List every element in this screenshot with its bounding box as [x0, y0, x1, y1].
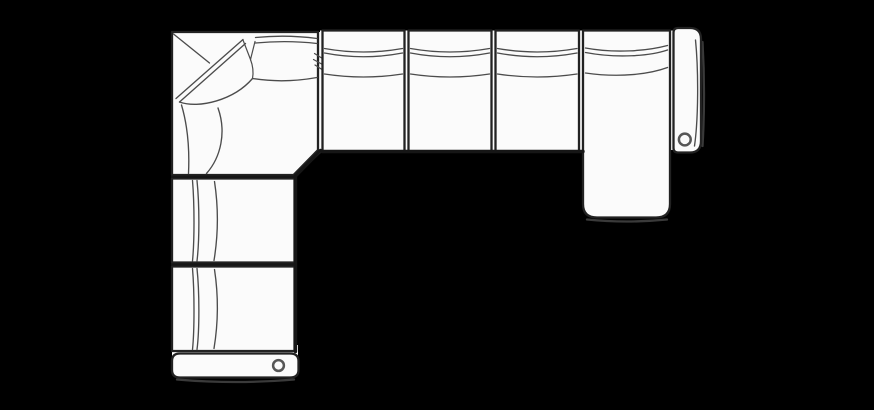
armless-seat-3	[496, 31, 580, 152]
right-arm-grommet	[679, 134, 691, 146]
diagram-canvas	[0, 0, 874, 410]
armless-seat-1-outline	[323, 31, 405, 152]
bottom-arm-grommet	[273, 360, 284, 371]
armless-seat-2-outline	[409, 31, 492, 152]
armless-seat-2	[409, 31, 492, 152]
sectional-sofa-diagram	[0, 0, 874, 410]
chaise-lounge	[583, 31, 670, 218]
corner-section-outline	[172, 32, 318, 175]
right-arm	[674, 28, 702, 153]
left-seat-1	[172, 179, 295, 263]
bottom-arm	[172, 354, 299, 378]
corner-section	[172, 32, 323, 175]
armless-seat-3-outline	[496, 31, 580, 152]
chaise-outline	[583, 31, 670, 218]
left-seat-2-outline	[172, 267, 295, 352]
left-seat-1-outline	[172, 179, 295, 263]
armless-seat-1	[323, 31, 405, 152]
left-seat-2	[172, 267, 295, 352]
